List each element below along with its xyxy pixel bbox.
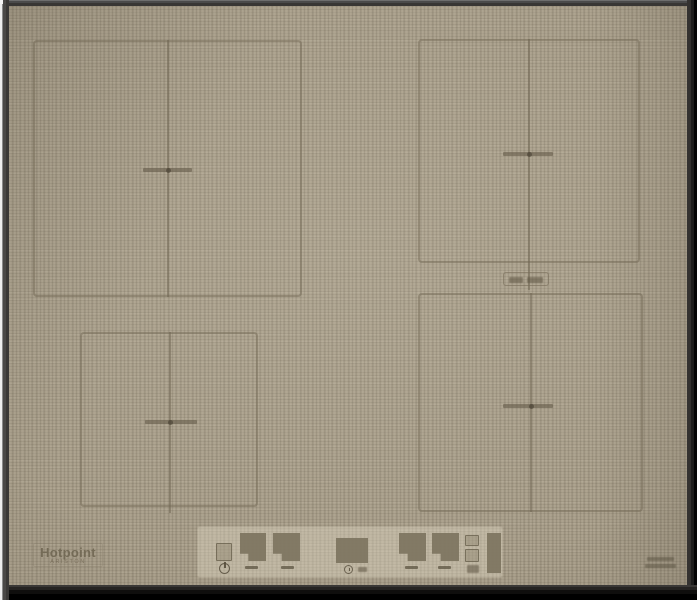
- engraved-label-box: [503, 272, 549, 286]
- power-icon: [219, 563, 230, 574]
- label-text-smudge: [527, 277, 543, 283]
- wattage-icon: [467, 565, 479, 573]
- touch-control-panel: [198, 527, 502, 577]
- minus-key-back-left[interactable]: [281, 566, 294, 569]
- fine-print-line: [647, 557, 674, 561]
- fine-print-stamp: [645, 556, 677, 571]
- bezel-left: [0, 0, 9, 600]
- cooking-zone-top-right: [418, 39, 640, 263]
- cooking-zone-bottom-right: [418, 293, 643, 512]
- side-indicator-bar: [487, 533, 501, 573]
- zone-divider-line: [530, 293, 532, 512]
- minus-key-front-right[interactable]: [438, 566, 451, 569]
- zone-divider-line: [528, 39, 530, 290]
- zone-center-dot: [168, 420, 173, 425]
- timer-clock-icon: [344, 565, 353, 574]
- zone-display-back-right: [399, 533, 426, 561]
- brand-name: Hotpoint: [34, 545, 102, 560]
- bezel-top: [0, 0, 697, 6]
- zone-center-dot: [529, 404, 534, 409]
- bezel-corner-highlight: [0, 0, 3, 4]
- fine-print-line: [645, 564, 676, 568]
- hob-product-photo: Hotpoint ARISTON: [0, 0, 697, 600]
- zone-center-dot: [527, 152, 532, 157]
- zone-display-front-left: [240, 533, 266, 561]
- option-key-upper[interactable]: [465, 535, 479, 546]
- zone-center-dash: [503, 404, 553, 408]
- option-key-lower[interactable]: [465, 549, 479, 562]
- power-key[interactable]: [216, 543, 232, 561]
- minus-key-back-right[interactable]: [405, 566, 418, 569]
- brand-logo: Hotpoint ARISTON: [33, 543, 103, 567]
- cooking-zone-top-left: [33, 40, 302, 297]
- zone-display-front-right: [432, 533, 459, 561]
- minus-key-front-left[interactable]: [245, 566, 258, 569]
- bezel-bottom: [0, 585, 697, 600]
- timer-mark-icon: [358, 567, 367, 572]
- timer-display: [336, 538, 368, 563]
- label-text-smudge: [509, 277, 523, 283]
- zone-center-dot: [166, 168, 171, 173]
- glass-surface: Hotpoint ARISTON: [8, 5, 688, 586]
- cooking-zone-bottom-left: [80, 332, 258, 507]
- bezel-right: [687, 0, 697, 600]
- zone-display-back-left: [273, 533, 300, 561]
